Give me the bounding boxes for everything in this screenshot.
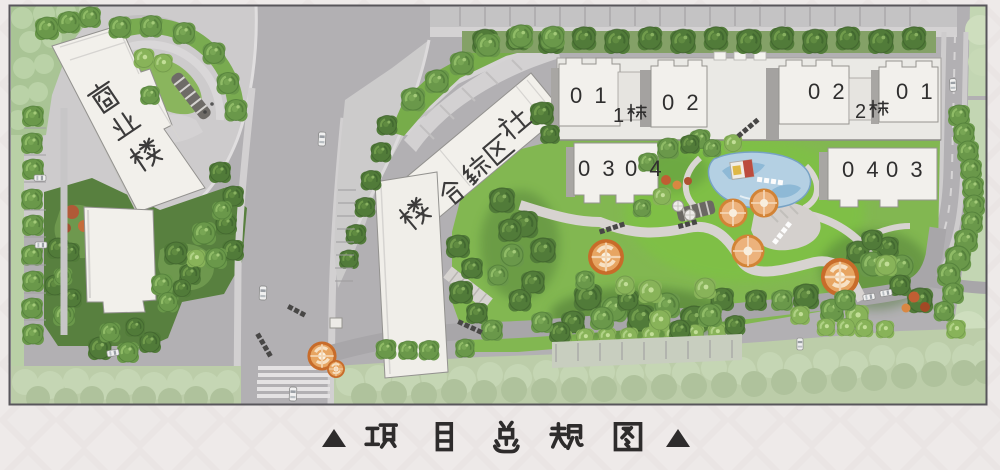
svg-text:0 3: 0 3 (886, 157, 926, 182)
svg-text:2: 2 (855, 101, 866, 123)
svg-text:1: 1 (613, 105, 624, 127)
svg-text:0 1: 0 1 (570, 83, 610, 108)
svg-text:0 2: 0 2 (662, 90, 702, 115)
svg-text:0 4: 0 4 (842, 157, 882, 182)
svg-text:0 1: 0 1 (896, 79, 936, 104)
svg-text:0 3: 0 3 (578, 156, 618, 181)
svg-text:0 2: 0 2 (808, 79, 848, 104)
svg-text:0 4: 0 4 (625, 156, 665, 181)
